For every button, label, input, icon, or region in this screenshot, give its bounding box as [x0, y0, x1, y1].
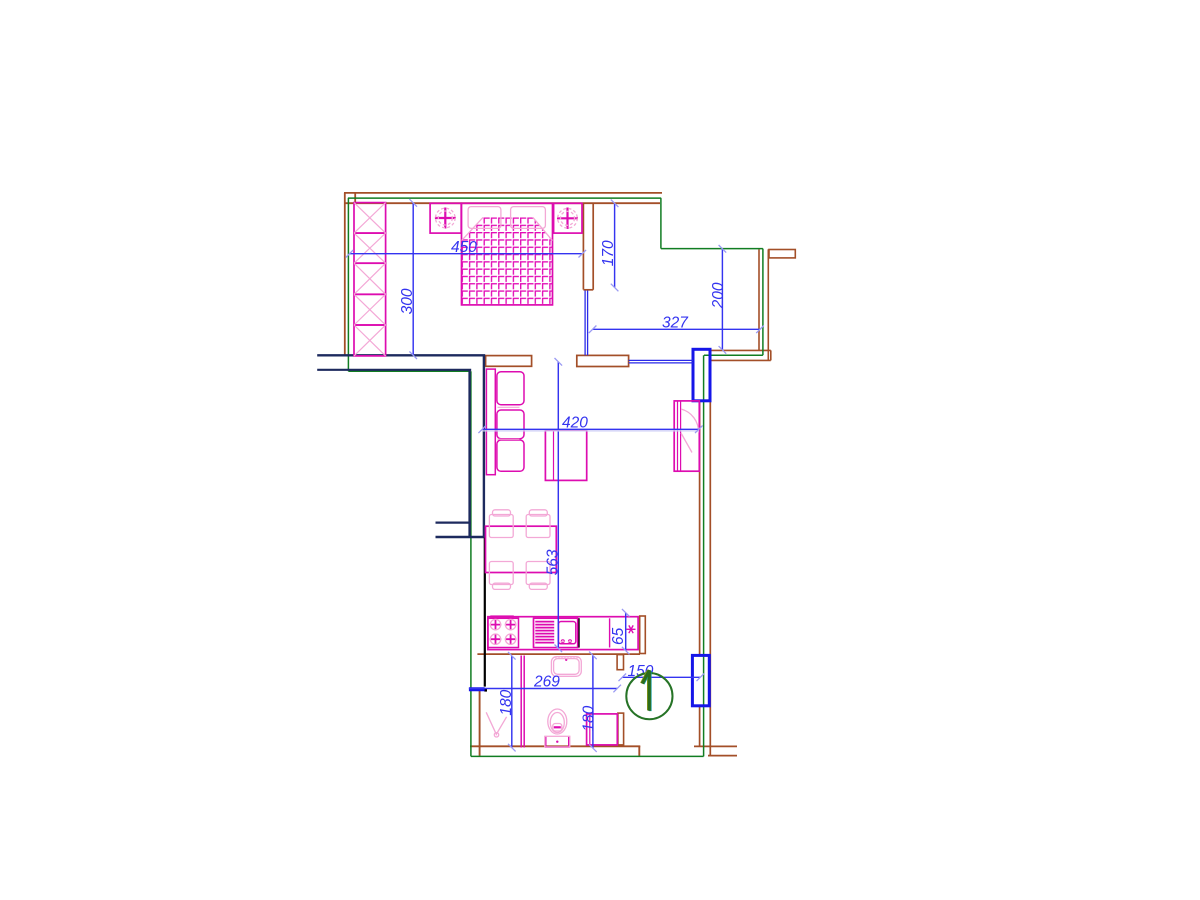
svg-text:65: 65	[610, 627, 627, 645]
svg-text:170: 170	[600, 240, 617, 266]
svg-text:420: 420	[562, 415, 588, 432]
svg-text:327: 327	[662, 315, 689, 332]
svg-text:269: 269	[533, 674, 560, 691]
svg-text:180: 180	[498, 689, 515, 715]
svg-text:563: 563	[544, 549, 561, 575]
svg-text:180: 180	[580, 705, 597, 731]
svg-text:300: 300	[399, 288, 416, 314]
svg-text:200: 200	[710, 282, 727, 309]
svg-text:450: 450	[451, 239, 477, 256]
